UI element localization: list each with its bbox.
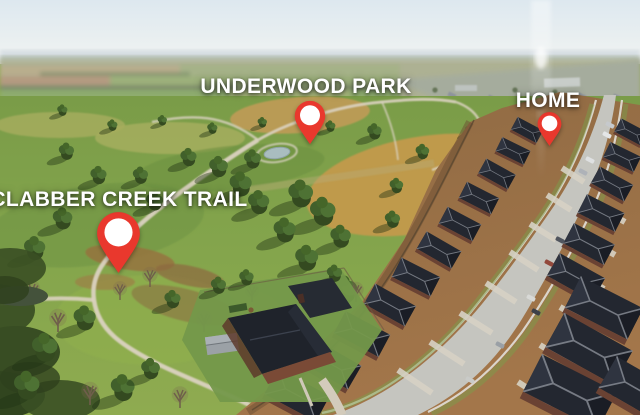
clabber-creek-trail-pin-icon[interactable] bbox=[96, 211, 141, 274]
label-home: HOME bbox=[516, 89, 581, 113]
label-underwood-park: UNDERWOOD PARK bbox=[200, 75, 411, 99]
label-clabber-creek-trail: CLABBER CREEK TRAIL bbox=[0, 188, 248, 212]
underwood-park-pin-icon[interactable] bbox=[294, 100, 326, 145]
home-pin-icon[interactable] bbox=[537, 111, 562, 147]
aerial-map-view: UNDERWOOD PARK HOME CLABBER CREEK TRAIL bbox=[0, 0, 640, 415]
